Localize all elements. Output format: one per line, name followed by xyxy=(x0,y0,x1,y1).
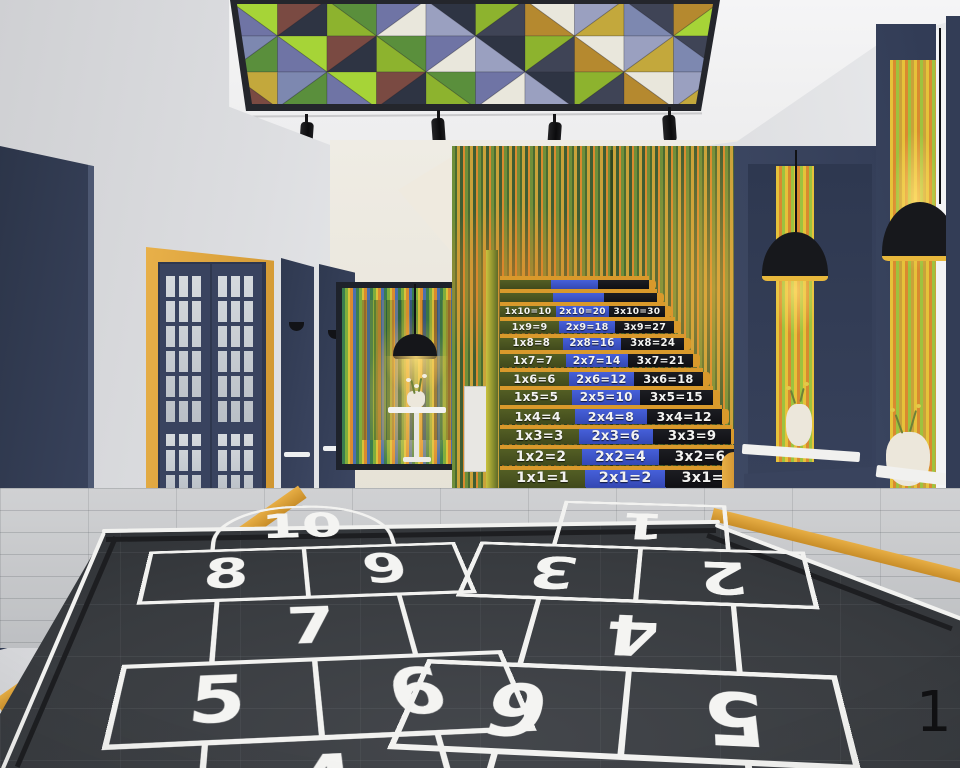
stair-equation-left: 1x9=9 xyxy=(500,321,559,333)
stair-tread-cap xyxy=(665,306,672,317)
hopscotch-cell-6: 6 xyxy=(387,659,632,761)
stair-equation-left: 1x6=6 xyxy=(500,372,569,386)
stair-equation-right xyxy=(598,280,649,289)
stair-tread-cap xyxy=(674,321,681,333)
stair-equation-left xyxy=(500,280,551,289)
stair-tread-cap xyxy=(684,338,691,350)
page-number-watermark: 1 xyxy=(916,680,952,745)
stair-tread-cap xyxy=(713,390,720,405)
flower-bloom xyxy=(804,382,809,386)
stair-step: 1x1=12x1=23x1=3 xyxy=(500,466,751,487)
stair-tread-cap xyxy=(693,354,700,367)
glass-door[interactable] xyxy=(158,262,266,512)
stair-step: 1x8=82x8=163x8=24 xyxy=(500,334,684,350)
stair-equation-mid: 2x7=14 xyxy=(566,354,628,367)
stair-equation-mid xyxy=(551,280,599,289)
flower-bloom xyxy=(890,408,895,412)
stair-equation-mid: 2x2=4 xyxy=(582,449,659,466)
stair-equation-right: 3x6=18 xyxy=(634,372,703,386)
stair-equation-mid: 2x6=12 xyxy=(569,372,634,386)
pendant-cord xyxy=(939,28,941,204)
stair-equation-mid: 2x1=2 xyxy=(585,470,665,487)
hopscotch-cell-1: 1 xyxy=(552,501,731,552)
flower-bloom xyxy=(916,404,921,408)
hopscotch-cell-2: 2 xyxy=(633,546,820,609)
hopscotch-cell-4: 4 xyxy=(517,596,743,676)
stair-step xyxy=(500,276,649,289)
door-glass-pane xyxy=(166,272,204,422)
stair-equation-mid: 2x10=20 xyxy=(556,306,609,317)
hopscotch-cell-5: 5 xyxy=(617,667,862,768)
stair-equation-right: 3x7=21 xyxy=(628,354,694,367)
spotlight-icon xyxy=(662,115,677,143)
ceiling-triangle-mosaic xyxy=(228,0,723,108)
stair-equation-left: 1x3=3 xyxy=(500,429,579,445)
stair-tread-cap xyxy=(703,372,710,386)
door-leaf-right[interactable] xyxy=(212,264,264,510)
stair-step: 1x3=32x3=63x3=9 xyxy=(500,425,732,445)
flower-bloom xyxy=(422,374,427,378)
flower-bloom xyxy=(414,384,419,388)
stair-equation-mid: 2x9=18 xyxy=(559,321,615,333)
stair-equation-left: 1x10=10 xyxy=(500,306,556,317)
stair-equation-left: 1x8=8 xyxy=(500,338,563,350)
corridor-scene: 1x10=102x10=203x10=301x9=92x9=183x9=271x… xyxy=(0,0,960,768)
booth-shelf xyxy=(284,452,310,457)
table-foot xyxy=(403,457,431,462)
stair-equation-right: 3x10=30 xyxy=(609,306,665,317)
stair-step: 1x9=92x9=183x9=27 xyxy=(500,317,675,333)
stair-equation-mid: 2x3=6 xyxy=(579,429,653,445)
stair-equation-left: 1x1=1 xyxy=(500,470,585,487)
stair-step: 1x6=62x6=123x6=18 xyxy=(500,368,703,386)
stair-equation-right: 3x3=9 xyxy=(653,429,732,445)
pendant-cord xyxy=(795,150,797,234)
stair-post xyxy=(486,250,498,508)
pendant-lamp-icon xyxy=(289,322,304,331)
door-glass-pane xyxy=(218,272,256,422)
door-glass-pane xyxy=(166,434,204,496)
stair-equation-left: 1x5=5 xyxy=(500,390,572,405)
stair-equation-right: 3x9=27 xyxy=(615,321,674,333)
table-leg xyxy=(414,413,419,459)
stair-step: 1x7=72x7=143x7=21 xyxy=(500,350,694,367)
door-glass-pane xyxy=(218,434,256,496)
stair-equation-mid: 2x5=10 xyxy=(572,390,640,405)
stair-tread-cap xyxy=(722,409,729,424)
stair-equation-left: 1x4=4 xyxy=(500,409,575,424)
stair-equation-mid: 2x8=16 xyxy=(563,338,622,350)
stair-step: 1x5=52x5=103x5=15 xyxy=(500,386,713,405)
stair-equation-right: 3x8=24 xyxy=(621,338,684,350)
stair-step xyxy=(500,289,657,303)
stair-step: 1x4=42x4=83x4=12 xyxy=(500,405,722,424)
hopscotch-cell-3: 3 xyxy=(456,541,644,603)
flower-bloom xyxy=(786,386,791,390)
stair-equation-right: 3x5=15 xyxy=(640,390,712,405)
door-leaf-left[interactable] xyxy=(160,264,212,510)
flower-bloom xyxy=(406,378,411,382)
stair-equation-mid: 2x4=8 xyxy=(575,409,646,424)
stair-equation-left: 1x2=2 xyxy=(500,449,582,466)
flower-vase xyxy=(786,404,812,446)
stair-equation-left: 1x7=7 xyxy=(500,354,566,367)
stair-tread-cap xyxy=(649,280,656,289)
flower-vase xyxy=(407,391,425,408)
stair-equation-right: 3x4=12 xyxy=(647,409,722,424)
stair-step: 1x2=22x2=43x2=6 xyxy=(500,445,741,466)
stair-step: 1x10=102x10=203x10=30 xyxy=(500,302,665,317)
pendant-cord xyxy=(414,284,416,336)
